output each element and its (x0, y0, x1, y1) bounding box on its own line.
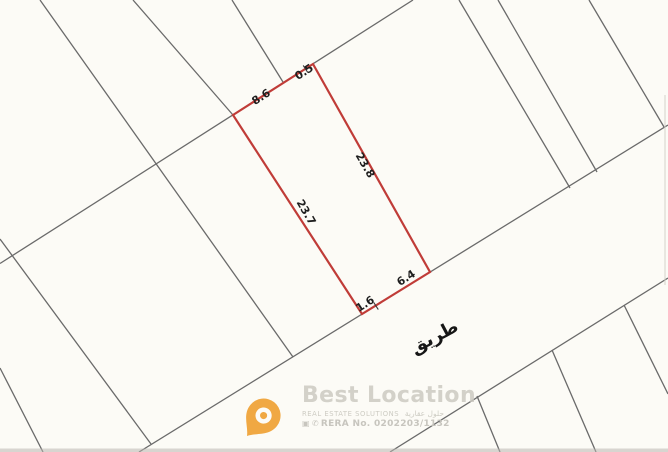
boundary-line (552, 350, 596, 452)
boundary-line (40, 0, 293, 357)
cadastral-drawing: 8.6 0.5 23.8 23.7 6.4 1.6 طريق (0, 0, 668, 452)
dimension-label-bottom-secondary: 1.6 (353, 293, 377, 315)
boundary-line (133, 0, 233, 115)
dimension-tick-marks (303, 65, 378, 309)
boundary-line (477, 396, 500, 452)
scanned-plot-map: 8.6 0.5 23.8 23.7 6.4 1.6 طريق Best Loca… (0, 0, 668, 452)
road-label: طريق (407, 316, 462, 359)
dimension-label-right-side: 23.8 (353, 150, 378, 180)
parcel-boundary-lines (0, 0, 668, 452)
boundary-line (624, 305, 668, 394)
boundary-line (498, 0, 597, 172)
boundary-line (589, 0, 664, 127)
scan-edge-artifact-bottom (0, 449, 668, 452)
boundary-line (0, 368, 43, 452)
road-lower-edge-line (390, 278, 668, 452)
boundary-line (232, 0, 283, 82)
dimension-label-top-primary: 8.6 (249, 86, 273, 108)
dimension-label-bottom-primary: 6.4 (394, 267, 418, 289)
